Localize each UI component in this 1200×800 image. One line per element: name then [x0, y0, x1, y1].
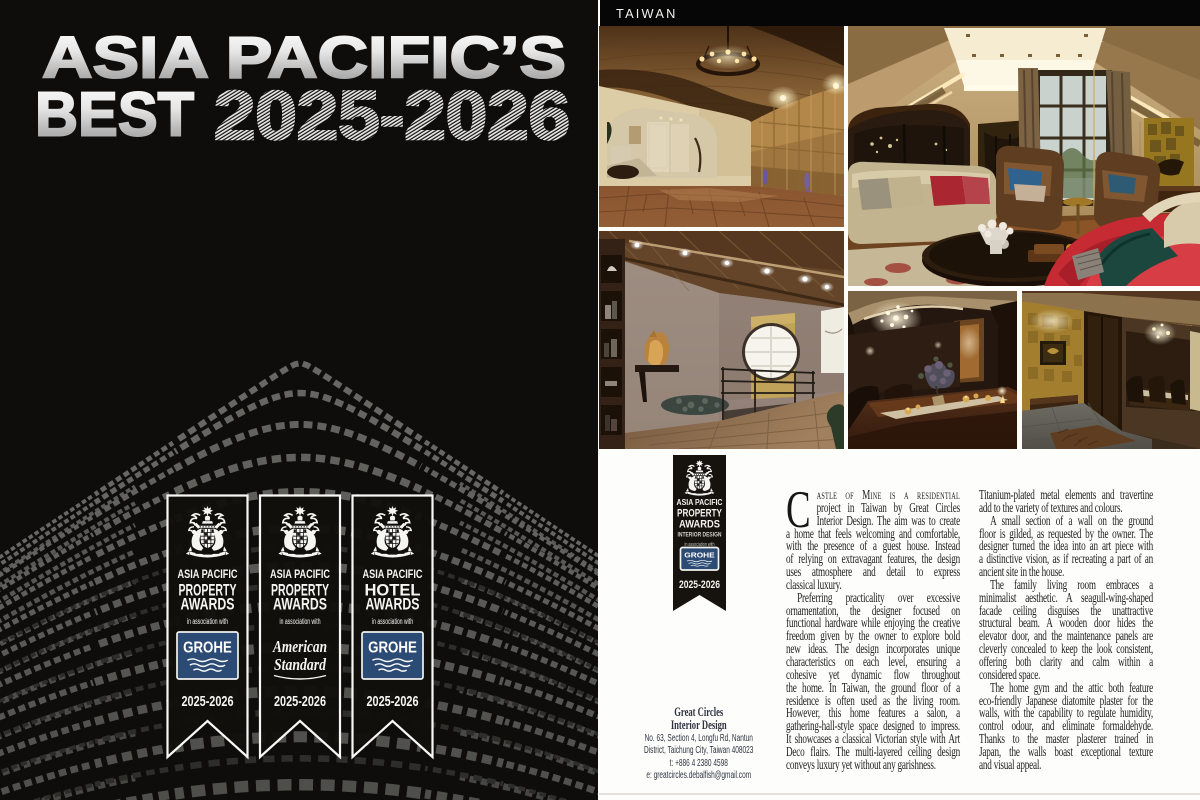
svg-text:BEST: BEST	[35, 81, 194, 150]
svg-text:2025-2026: 2025-2026	[274, 694, 326, 710]
svg-text:in association with: in association with	[187, 617, 228, 626]
svg-text:GROHE: GROHE	[368, 640, 417, 657]
svg-text:ASIA PACIFIC: ASIA PACIFIC	[270, 569, 330, 581]
svg-text:ASIA PACIFIC: ASIA PACIFIC	[363, 569, 423, 581]
svg-text:2025-2026: 2025-2026	[679, 579, 720, 591]
svg-text:AWARDS: AWARDS	[181, 596, 235, 614]
svg-text:2025-2026: 2025-2026	[367, 694, 419, 710]
svg-text:in association with: in association with	[280, 617, 321, 626]
svg-text:GROHE: GROHE	[684, 550, 714, 559]
svg-text:2025-2026: 2025-2026	[182, 694, 234, 710]
svg-text:Standard: Standard	[274, 655, 327, 674]
svg-text:AWARDS: AWARDS	[273, 596, 327, 614]
svg-text:in association with: in association with	[372, 617, 413, 626]
svg-text:GROHE: GROHE	[183, 640, 232, 657]
svg-text:ASIA PACIFIC: ASIA PACIFIC	[178, 569, 238, 581]
svg-text:ASIA PACIFIC: ASIA PACIFIC	[677, 498, 723, 507]
svg-text:2025-2026: 2025-2026	[214, 77, 570, 154]
svg-text:American: American	[272, 637, 327, 656]
svg-text:AWARDS: AWARDS	[366, 596, 420, 614]
svg-text:AWARDS: AWARDS	[679, 519, 720, 531]
svg-text:INTERIOR DESIGN: INTERIOR DESIGN	[678, 533, 722, 539]
